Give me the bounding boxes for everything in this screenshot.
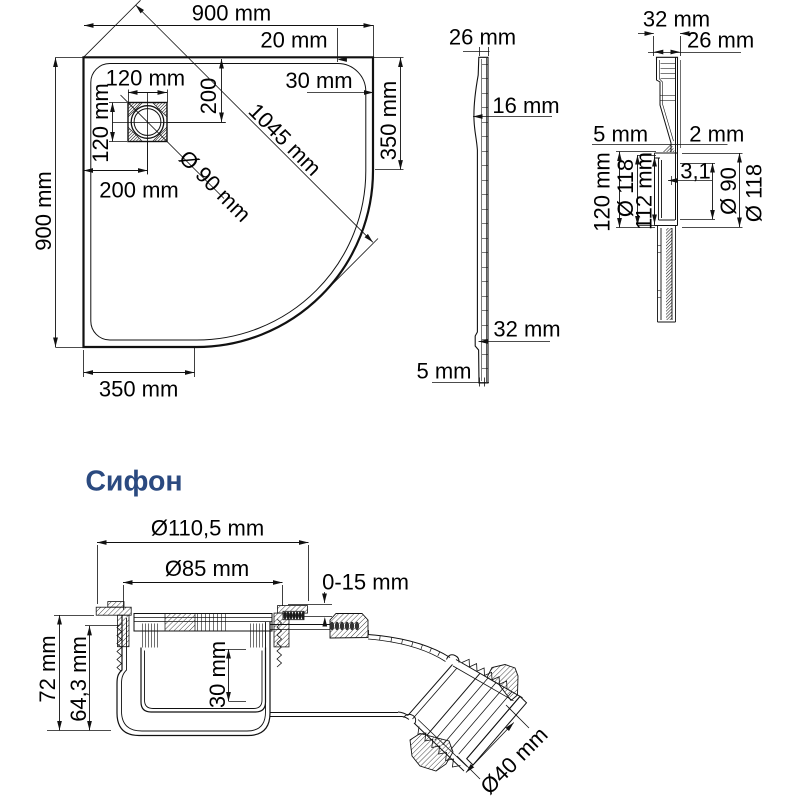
svg-text:3,1: 3,1 xyxy=(680,159,711,184)
svg-text:Сифон: Сифон xyxy=(85,466,182,498)
svg-text:32 mm: 32 mm xyxy=(493,317,560,342)
svg-text:200: 200 xyxy=(196,78,221,115)
svg-text:72 mm: 72 mm xyxy=(35,635,60,702)
svg-text:64,3 mm: 64,3 mm xyxy=(66,636,91,722)
svg-text:Ø85 mm: Ø85 mm xyxy=(165,556,249,581)
svg-text:30 mm: 30 mm xyxy=(285,68,352,93)
svg-text:26 mm: 26 mm xyxy=(687,28,754,53)
svg-text:112 mm: 112 mm xyxy=(631,152,656,230)
svg-text:120 mm: 120 mm xyxy=(106,66,185,91)
svg-text:Ø 118: Ø 118 xyxy=(742,164,767,222)
svg-text:350 mm: 350 mm xyxy=(376,81,401,160)
svg-text:0-15 mm: 0-15 mm xyxy=(322,570,409,595)
svg-text:26 mm: 26 mm xyxy=(449,25,516,50)
svg-text:2 mm: 2 mm xyxy=(689,122,744,147)
svg-text:Ø 90: Ø 90 xyxy=(716,167,741,215)
svg-text:30 mm: 30 mm xyxy=(205,641,230,708)
svg-text:120 mm: 120 mm xyxy=(590,152,615,231)
svg-text:900 mm: 900 mm xyxy=(192,1,271,26)
svg-text:120 mm: 120 mm xyxy=(88,83,113,162)
svg-text:20 mm: 20 mm xyxy=(260,28,327,53)
svg-text:200 mm: 200 mm xyxy=(99,178,178,203)
svg-text:5 mm: 5 mm xyxy=(593,122,648,147)
svg-text:Ø110,5 mm: Ø110,5 mm xyxy=(151,516,264,541)
svg-text:900 mm: 900 mm xyxy=(31,171,56,250)
svg-text:16 mm: 16 mm xyxy=(492,93,559,118)
svg-text:350 mm: 350 mm xyxy=(99,377,178,402)
svg-text:5 mm: 5 mm xyxy=(417,359,472,384)
